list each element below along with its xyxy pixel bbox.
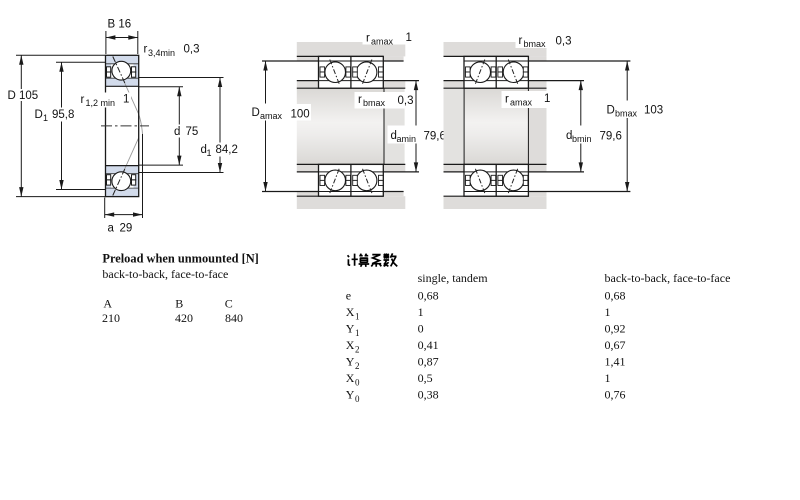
svg-text:r: r xyxy=(81,94,85,106)
svg-text:95,8: 95,8 xyxy=(52,109,74,121)
svg-text:0,76: 0,76 xyxy=(605,388,626,402)
svg-text:1: 1 xyxy=(605,305,611,319)
svg-text:back-to-back, face-to-face: back-to-back, face-to-face xyxy=(102,267,228,281)
svg-text:amax: amax xyxy=(260,111,283,121)
svg-text:Y: Y xyxy=(346,388,355,402)
svg-text:0,3: 0,3 xyxy=(398,95,414,107)
svg-text:Y: Y xyxy=(346,322,355,336)
svg-text:r: r xyxy=(366,33,370,45)
svg-text:1: 1 xyxy=(355,328,360,338)
svg-text:0,68: 0,68 xyxy=(418,289,439,303)
svg-text:A: A xyxy=(103,297,112,311)
svg-text:84,2: 84,2 xyxy=(216,144,238,156)
svg-text:B: B xyxy=(175,297,183,311)
svg-text:bmin: bmin xyxy=(572,134,592,144)
svg-text:B 16: B 16 xyxy=(108,19,132,31)
svg-text:2: 2 xyxy=(355,345,360,355)
svg-text:2: 2 xyxy=(355,361,360,371)
svg-text:a: a xyxy=(108,223,115,235)
svg-text:1: 1 xyxy=(544,93,550,105)
svg-text:0: 0 xyxy=(355,378,360,388)
svg-text:0,41: 0,41 xyxy=(418,338,439,352)
svg-text:0,38: 0,38 xyxy=(418,388,439,402)
svg-text:75: 75 xyxy=(186,126,199,138)
svg-text:1: 1 xyxy=(43,113,48,123)
svg-text:r: r xyxy=(505,94,509,106)
svg-text:0: 0 xyxy=(418,322,424,336)
svg-text:X: X xyxy=(346,305,355,319)
svg-text:1: 1 xyxy=(123,94,129,106)
svg-text:0,5: 0,5 xyxy=(418,371,433,385)
svg-text:r: r xyxy=(519,35,523,47)
svg-text:Y: Y xyxy=(346,355,355,369)
svg-text:1: 1 xyxy=(605,371,611,385)
svg-text:amax: amax xyxy=(371,37,394,47)
svg-text:0,68: 0,68 xyxy=(605,289,626,303)
svg-text:D: D xyxy=(252,107,260,119)
svg-text:C: C xyxy=(225,297,233,311)
svg-text:r: r xyxy=(144,44,148,56)
svg-text:210: 210 xyxy=(102,311,120,325)
svg-text:420: 420 xyxy=(175,311,193,325)
svg-text:X: X xyxy=(346,371,355,385)
svg-text:single, tandem: single, tandem xyxy=(418,271,489,285)
svg-text:0,3: 0,3 xyxy=(184,44,200,56)
svg-text:bmax: bmax xyxy=(524,39,547,49)
svg-text:1: 1 xyxy=(355,312,360,322)
svg-text:3,4min: 3,4min xyxy=(148,48,175,58)
svg-text:r: r xyxy=(358,94,362,106)
svg-text:1: 1 xyxy=(207,148,212,158)
svg-text:D 105: D 105 xyxy=(8,90,39,102)
svg-text:840: 840 xyxy=(225,311,243,325)
svg-text:d: d xyxy=(174,126,180,138)
svg-text:e: e xyxy=(346,289,351,303)
svg-text:1: 1 xyxy=(406,32,412,44)
svg-text:29: 29 xyxy=(120,223,133,235)
svg-text:X: X xyxy=(346,338,355,352)
svg-text:100: 100 xyxy=(291,109,310,121)
svg-text:D: D xyxy=(35,109,43,121)
svg-text:amin: amin xyxy=(397,134,417,144)
svg-text:0,92: 0,92 xyxy=(605,322,626,336)
svg-text:79,6: 79,6 xyxy=(424,131,446,143)
svg-text:1: 1 xyxy=(418,305,424,319)
svg-text:bmax: bmax xyxy=(363,98,386,108)
svg-text:D: D xyxy=(607,105,615,117)
svg-text:0: 0 xyxy=(355,394,360,404)
svg-text:1,41: 1,41 xyxy=(605,355,626,369)
svg-text:bmax: bmax xyxy=(615,109,638,119)
svg-text:0,3: 0,3 xyxy=(556,36,572,48)
svg-text:Preload when unmounted [N]: Preload when unmounted [N] xyxy=(102,252,258,266)
svg-text:back-to-back, face-to-face: back-to-back, face-to-face xyxy=(605,271,731,285)
svg-text:1,2 min: 1,2 min xyxy=(86,98,116,108)
svg-text:79,6: 79,6 xyxy=(600,131,622,143)
svg-text:103: 103 xyxy=(644,105,663,117)
svg-text:0,67: 0,67 xyxy=(605,338,626,352)
svg-text:amax: amax xyxy=(510,98,533,108)
svg-text:0,87: 0,87 xyxy=(418,355,439,369)
